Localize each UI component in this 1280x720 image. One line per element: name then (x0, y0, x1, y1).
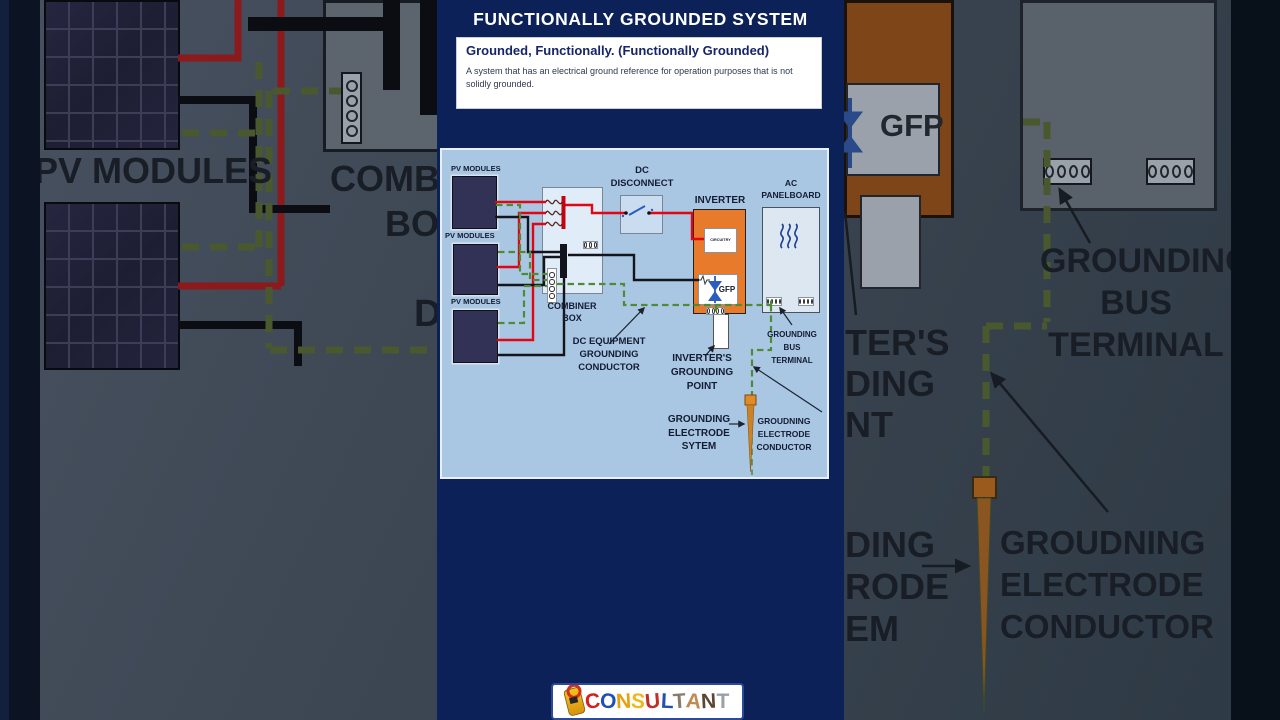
inverter-label: INVERTER (680, 195, 760, 206)
logo-letter: O (599, 690, 617, 712)
grounding-electrode-system-label: GROUNDINGELECTRODESYTEM (649, 413, 749, 454)
logo-letter: T (717, 691, 730, 712)
video-frame: PV MODULES COMBI BOX D GFP GROUNDINGBUST… (0, 0, 1280, 720)
bg-label-pv-modules: PV MODULES (34, 150, 272, 192)
logo-letter: U (644, 690, 661, 712)
clamp-meter-icon (563, 686, 586, 716)
bg-label-electrode-fragment: DINGRODEEM (845, 524, 949, 650)
main-panel: FUNCTIONALLY GROUNDED SYSTEM Grounded, F… (437, 0, 844, 720)
dc-disconnect-label: DCDISCONNECT (602, 164, 682, 190)
ac-panelboard-label: ACPANELBOARD (751, 178, 831, 201)
left-letterbox-bar (0, 0, 40, 720)
bg-label-combiner-fragment: COMBI (330, 158, 450, 200)
logo-letter: N (701, 690, 717, 712)
logo-letter: C (584, 690, 601, 712)
grounding-bus-terminal-label: GROUNDINGBUSTERMINAL (757, 328, 827, 367)
bg-label-gfp: GFP (880, 108, 944, 144)
definition-box: Grounded, Functionally. (Functionally Gr… (456, 37, 822, 109)
combiner-label: COMBINERBOX (542, 300, 602, 324)
inverters-grounding-point-label: INVERTER'SGROUNDINGPOINT (652, 352, 752, 394)
bg-label-grounding-bus-terminal: GROUNDINGBUSTERMINAL (1040, 240, 1232, 366)
dc-equipment-grounding-label: DC EQUIPMENTGROUNDINGCONDUCTOR (559, 335, 659, 374)
grounding-electrode-conductor-label: GROUDNINGELECTRODECONDUCTOR (739, 415, 829, 454)
channel-logo: CONSULTANT (551, 683, 744, 720)
logo-wordmark: CONSULTANT (585, 691, 730, 713)
bg-label-electrode-conductor: GROUDNINGELECTRODECONDUCTOR (1000, 522, 1200, 648)
bg-label-inverters-fragment: TER'SDINGNT (845, 322, 950, 445)
page-title: FUNCTIONALLY GROUNDED SYSTEM (437, 9, 844, 30)
definition-body: A system that has an electrical ground r… (466, 65, 810, 91)
pv-modules-label-3: PV MODULES (451, 297, 501, 306)
pv-modules-label-1: PV MODULES (451, 164, 501, 173)
right-letterbox-bar (1231, 0, 1280, 720)
definition-term: Grounded, Functionally. (Functionally Gr… (466, 43, 769, 58)
pv-modules-label-2: PV MODULES (445, 231, 495, 240)
system-diagram: PV MODULES PV MODULES PV MODULES DCDISCO… (440, 148, 829, 479)
